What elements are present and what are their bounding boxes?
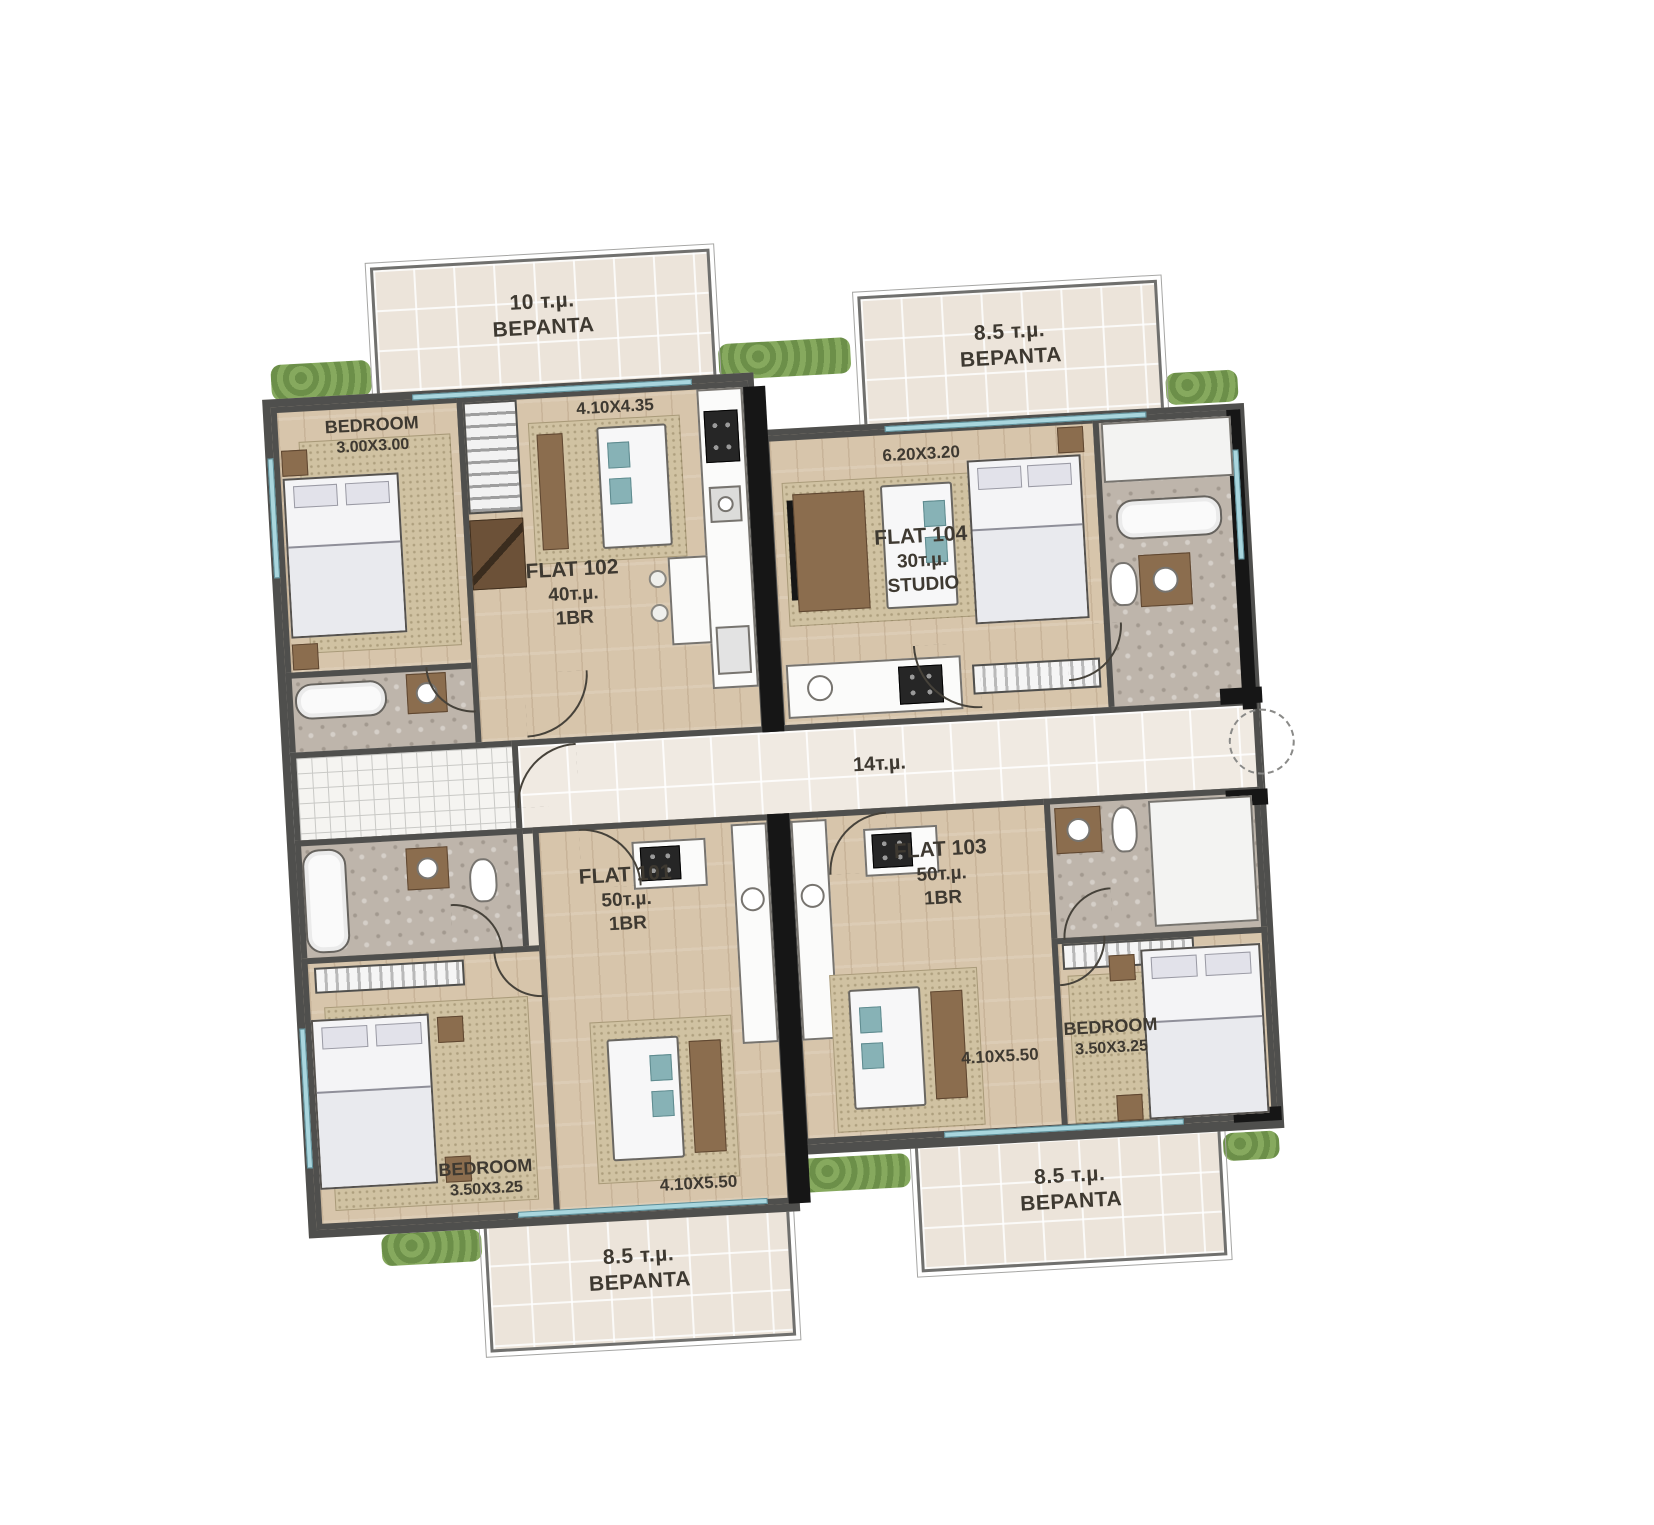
- sofa: [606, 1036, 685, 1162]
- cushion: [651, 1090, 674, 1117]
- veranda-top-left-label: 10 т.µ. BEPANTA: [491, 286, 596, 344]
- cushion: [609, 477, 632, 504]
- flat-101-name: FLAT 101: [578, 860, 672, 891]
- veranda-bottom-left-name: BEPANTA: [588, 1267, 691, 1299]
- flat-103-label: FLAT 103 50т.µ. 1BR: [893, 834, 990, 913]
- duvet: [317, 1085, 436, 1187]
- flat-102-bedroom-label: BEDROOM 3.00X3.00: [324, 411, 420, 459]
- pillow: [345, 481, 390, 505]
- pillow: [1151, 955, 1198, 980]
- bathtub: [1115, 494, 1223, 540]
- veranda-top-left-name: BEPANTA: [492, 312, 595, 344]
- vanity: [405, 846, 449, 890]
- flat-104-label: FLAT 104 30т.µ. STUDIO: [874, 521, 971, 600]
- tv-rug: [930, 990, 968, 1100]
- greenery-strip: [1165, 369, 1239, 405]
- sink-icon: [416, 857, 439, 880]
- flat-102-name: FLAT 102: [525, 554, 619, 585]
- veranda-top-right: 8.5 т.µ. BEPANTA: [857, 280, 1164, 429]
- tv-rug: [792, 490, 870, 612]
- sofa: [596, 423, 673, 549]
- cushion: [649, 1054, 672, 1081]
- pillow: [375, 1022, 422, 1047]
- shower: [1148, 795, 1259, 927]
- pillow: [1027, 463, 1072, 487]
- vanity: [1054, 806, 1102, 854]
- sink-icon: [717, 496, 734, 513]
- flat-103-bedroom-label: BEDROOM 3.50X3.25: [1063, 1013, 1159, 1061]
- nightstand: [292, 643, 319, 670]
- fridge: [716, 625, 753, 675]
- greenery-strip: [381, 1229, 483, 1267]
- nightstand: [1116, 1094, 1143, 1121]
- bed: [1140, 943, 1269, 1119]
- bathtub: [301, 848, 351, 954]
- sink-icon: [1152, 566, 1179, 593]
- wardrobe: [469, 517, 527, 590]
- pillow: [1205, 952, 1252, 977]
- nightstand: [1108, 954, 1135, 981]
- kitchen-sink: [709, 485, 743, 523]
- pillow: [321, 1025, 368, 1050]
- floor-plan-canvas: 10 т.µ. BEPANTA 8.5 т.µ. BEPANTA 8.5 т.µ…: [0, 0, 1654, 1525]
- flat-102-label: FLAT 102 40т.µ. 1BR: [525, 554, 622, 633]
- shower: [1101, 416, 1234, 483]
- tv-rug: [689, 1039, 727, 1153]
- staircase: [463, 400, 523, 515]
- nightstand: [437, 1016, 464, 1043]
- kitchen-island: [668, 555, 713, 645]
- nightstand: [1057, 426, 1084, 453]
- veranda-bottom-right: 8.5 т.µ. BEPANTA: [915, 1128, 1228, 1273]
- bathtub: [294, 679, 388, 720]
- flat-101-label: FLAT 101 50т.µ. 1BR: [578, 860, 675, 939]
- cooktop-icon: [703, 409, 740, 463]
- veranda-bottom-left: 8.5 т.µ. BEPANTA: [483, 1206, 796, 1353]
- pillow: [977, 466, 1022, 490]
- bed: [283, 472, 408, 638]
- flat-101-living-dims: 4.10X5.50: [659, 1171, 738, 1197]
- flat-102-living-dims: 4.10X4.35: [576, 394, 655, 420]
- flat-103-living-dims: 4.10X5.50: [961, 1044, 1040, 1070]
- cushion: [861, 1042, 884, 1069]
- nightstand: [281, 449, 308, 476]
- floor-plan: 10 т.µ. BEPANTA 8.5 т.µ. BEPANTA 8.5 т.µ…: [255, 218, 1325, 1373]
- duvet: [972, 523, 1087, 622]
- veranda-bottom-left-label: 8.5 т.µ. BEPANTA: [587, 1240, 692, 1298]
- flat-103-name: FLAT 103: [893, 834, 987, 865]
- bed: [311, 1014, 438, 1190]
- duvet: [288, 540, 405, 637]
- sofa: [848, 986, 927, 1110]
- duvet: [1146, 1015, 1267, 1118]
- pillow: [293, 484, 338, 508]
- flat-104-living-dims: 6.20X3.20: [882, 441, 961, 467]
- greenery-strip: [1223, 1130, 1280, 1161]
- flat-101-bedroom-label: BEDROOM 3.50X3.25: [438, 1154, 534, 1202]
- cushion: [859, 1006, 882, 1033]
- sink-icon: [1066, 817, 1091, 842]
- veranda-top-right-name: BEPANTA: [959, 342, 1062, 374]
- flat-104-name: FLAT 104: [874, 521, 968, 552]
- vanity: [1138, 552, 1193, 607]
- veranda-top-right-label: 8.5 т.µ. BEPANTA: [958, 316, 1063, 374]
- cushion: [607, 441, 630, 468]
- veranda-bottom-right-name: BEPANTA: [1020, 1186, 1123, 1218]
- veranda-bottom-right-label: 8.5 т.µ. BEPANTA: [1018, 1160, 1123, 1218]
- corridor-area-label: 14т.µ.: [852, 751, 906, 779]
- bed: [967, 454, 1090, 624]
